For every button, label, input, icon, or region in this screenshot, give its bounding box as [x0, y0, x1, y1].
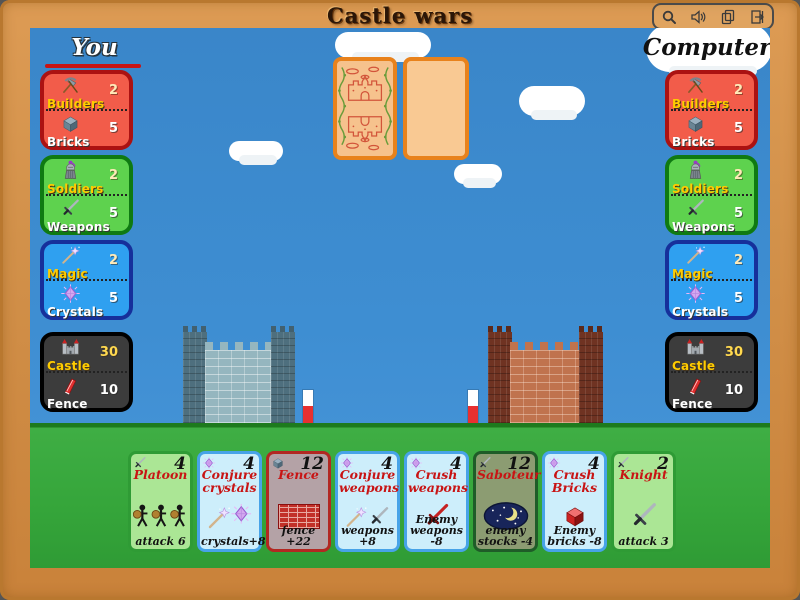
hand-card-conjure-weapons[interactable]: 4 Conjure weapons weapons +8: [335, 451, 400, 552]
bricks-count: 5: [109, 121, 118, 136]
wand-icon: [60, 245, 81, 266]
crystals-count: 5: [734, 291, 743, 306]
card-title: Crush weapons: [408, 469, 465, 495]
magic-label: Magic: [47, 267, 88, 281]
card-title: Crush Bricks: [546, 469, 603, 495]
volume-button[interactable]: [688, 8, 708, 26]
castle-left: [183, 332, 295, 423]
three-warriors-icon: [133, 503, 189, 529]
bricks-icon: [685, 113, 706, 134]
castle-tower: [271, 332, 295, 423]
soldier-icon: [685, 160, 706, 181]
card-effect: enemy stocks -4: [477, 525, 534, 547]
cloud: [335, 32, 431, 58]
hand-card-saboteur[interactable]: 12 Saboteur enemy stocks -4: [473, 451, 538, 552]
builders-count: 2: [109, 83, 118, 98]
builders-label: Builders: [47, 97, 104, 111]
sword-icon: [60, 198, 81, 219]
card-title: Conjure weapons: [339, 469, 396, 495]
fence-icon: [685, 375, 706, 396]
cloud: [229, 141, 283, 161]
bricks-label: Bricks: [672, 135, 715, 149]
card-title: Platoon: [132, 469, 189, 482]
castle-icon: [60, 337, 81, 358]
fence-post-right: [468, 390, 478, 423]
game-window: Castle wars: [0, 0, 800, 600]
crystal-icon: [60, 283, 81, 304]
card-effect: attack 3: [615, 536, 672, 547]
card-back-art: [337, 61, 393, 156]
panel-you-builders: 2 Builders 5 Bricks: [40, 70, 133, 150]
castle-count: 30: [725, 345, 743, 360]
deck-card-back[interactable]: [333, 57, 397, 160]
sword-icon: [685, 198, 706, 219]
builders-icon: [60, 75, 81, 96]
soldiers-label: Soldiers: [672, 182, 729, 196]
fence-count: 10: [100, 383, 118, 398]
soldiers-label: Soldiers: [47, 182, 104, 196]
builders-icon: [685, 75, 706, 96]
card-title: Knight: [615, 469, 672, 482]
crystals-label: Crystals: [672, 305, 728, 319]
turn-indicator: [45, 64, 141, 68]
castle-tower: [488, 332, 512, 423]
magic-label: Magic: [672, 267, 713, 281]
toolbar: [652, 3, 774, 30]
weapons-count: 5: [109, 206, 118, 221]
crystal-icon: [685, 283, 706, 304]
castle-count: 30: [100, 345, 118, 360]
hand-card-fence[interactable]: 12 Fence fence +22: [266, 451, 331, 552]
card-title: Saboteur: [477, 469, 534, 482]
castle-wall: [510, 350, 581, 423]
hand-card-knight[interactable]: 2 Knight attack 3: [611, 451, 676, 552]
panel-you-magic: 2 Magic 5 Crystals: [40, 240, 133, 320]
card-effect: Enemy bricks -8: [546, 525, 603, 547]
castle-tower: [579, 332, 603, 423]
panel-computer-magic: 2 Magic 5 Crystals: [665, 240, 758, 320]
builders-label: Builders: [672, 97, 729, 111]
wand-and-crystal-icon: [206, 501, 254, 531]
magic-count: 2: [734, 253, 743, 268]
card-title: Conjure crystals: [201, 469, 258, 495]
volume-icon: [690, 9, 706, 25]
castle-wall: [205, 350, 273, 423]
castle-label: Castle: [47, 359, 90, 373]
player-label-you: You: [42, 34, 147, 61]
cloud: [519, 86, 585, 116]
bricks-label: Bricks: [47, 135, 90, 149]
card-title: Fence: [270, 469, 327, 482]
crystals-label: Crystals: [47, 305, 103, 319]
exit-door-icon: [749, 9, 765, 25]
weapons-count: 5: [734, 206, 743, 221]
hand-card-crush-weapons[interactable]: 4 Crush weapons Enemy weapons -8: [404, 451, 469, 552]
soldiers-count: 2: [109, 168, 118, 183]
panel-computer-soldiers: 2 Soldiers 5 Weapons: [665, 155, 758, 235]
hand-card-conjure-crystals[interactable]: 4 Conjure crystals crystals+8: [197, 451, 262, 552]
hand-card-crush-bricks[interactable]: 4 Crush Bricks Enemy bricks -8: [542, 451, 607, 552]
card-effect: fence +22: [270, 525, 327, 547]
hand-card-platoon[interactable]: 4 Platoon attack 6: [128, 451, 193, 552]
hand: 4 Platoon attack 6 4 Conjure crystals cr…: [128, 451, 676, 552]
fence-icon: [60, 375, 81, 396]
fence-label: Fence: [47, 397, 88, 411]
exit-button[interactable]: [747, 8, 767, 26]
weapons-label: Weapons: [47, 220, 110, 234]
pages-button[interactable]: [718, 8, 738, 26]
castle-tower: [183, 332, 207, 423]
panel-computer-builders: 2 Builders 5 Bricks: [665, 70, 758, 150]
play-field: You Computer 2 Builders 5 Bricks 2 Soldi…: [30, 28, 770, 568]
weapons-label: Weapons: [672, 220, 735, 234]
castle-right: [488, 332, 603, 423]
fence-count: 10: [725, 383, 743, 398]
magnifier-icon: [661, 9, 677, 25]
crystals-count: 5: [109, 291, 118, 306]
bricks-count: 5: [734, 121, 743, 136]
card-effect: Enemy weapons -8: [408, 514, 465, 547]
card-effect: weapons +8: [339, 525, 396, 547]
soldier-icon: [60, 160, 81, 181]
castle-icon: [685, 337, 706, 358]
bricks-icon: [60, 113, 81, 134]
fence-post-left: [303, 390, 313, 423]
card-slot-empty: [403, 57, 469, 160]
panel-computer-castle: 30 Castle 10 Fence: [665, 332, 758, 412]
builders-count: 2: [734, 83, 743, 98]
card-effect: attack 6: [132, 536, 189, 547]
castle-label: Castle: [672, 359, 715, 373]
player-label-computer: Computer: [642, 34, 770, 61]
soldiers-count: 2: [734, 168, 743, 183]
fence-label: Fence: [672, 397, 713, 411]
magic-count: 2: [109, 253, 118, 268]
magnifier-button[interactable]: [659, 8, 679, 26]
panel-you-soldiers: 2 Soldiers 5 Weapons: [40, 155, 133, 235]
cloud: [454, 164, 502, 184]
sword-icon: [629, 501, 659, 531]
pages-icon: [720, 9, 736, 25]
panel-you-castle: 30 Castle 10 Fence: [40, 332, 133, 412]
wand-icon: [685, 245, 706, 266]
card-effect: crystals+8: [201, 536, 258, 547]
